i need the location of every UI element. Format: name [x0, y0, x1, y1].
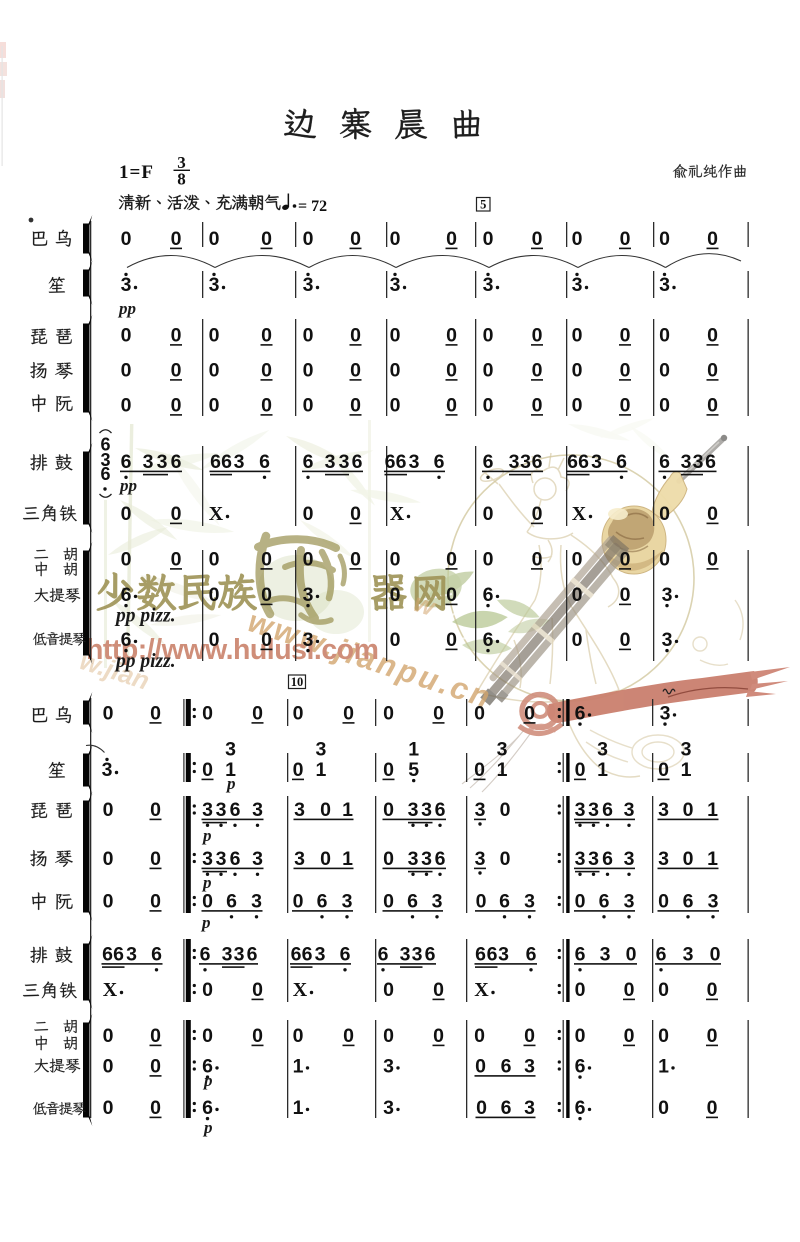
svg-text:10: 10: [291, 675, 304, 689]
svg-text:0: 0: [390, 395, 401, 417]
svg-text:1: 1: [293, 1056, 304, 1078]
svg-text:0: 0: [293, 759, 304, 781]
svg-text:0: 0: [303, 395, 314, 417]
svg-text:3: 3: [681, 451, 692, 473]
svg-text:0: 0: [261, 584, 272, 606]
svg-text:0: 0: [383, 703, 394, 725]
svg-text:0: 0: [446, 395, 457, 417]
svg-text:3: 3: [234, 451, 245, 473]
svg-text:0: 0: [121, 360, 132, 382]
svg-text:0: 0: [707, 1097, 718, 1119]
svg-text:0: 0: [209, 629, 220, 651]
svg-text:0: 0: [252, 1025, 263, 1047]
svg-text:0: 0: [620, 584, 631, 606]
svg-text:0: 0: [350, 549, 361, 571]
svg-text:3: 3: [294, 848, 305, 870]
svg-text:0: 0: [150, 799, 161, 821]
svg-text:6: 6: [396, 451, 407, 473]
svg-text:6: 6: [483, 629, 494, 651]
svg-text:0: 0: [707, 979, 718, 1001]
svg-text:0: 0: [383, 759, 394, 781]
svg-text:X: X: [293, 979, 308, 1001]
svg-text:3: 3: [315, 944, 326, 966]
svg-text:3: 3: [575, 799, 586, 821]
svg-text:0: 0: [350, 325, 361, 347]
svg-text:0: 0: [261, 325, 272, 347]
svg-text:3: 3: [624, 848, 635, 870]
svg-text:3: 3: [624, 891, 635, 913]
svg-text:0: 0: [202, 759, 213, 781]
svg-text:3: 3: [432, 891, 443, 913]
svg-text:6: 6: [100, 464, 110, 484]
svg-text:1: 1: [707, 848, 718, 870]
svg-text:3: 3: [251, 891, 262, 913]
svg-text:6: 6: [259, 451, 270, 473]
svg-text:8: 8: [177, 170, 186, 189]
svg-text:1: 1: [597, 759, 608, 781]
svg-text:X: X: [103, 979, 118, 1001]
svg-text:6: 6: [113, 944, 124, 966]
svg-text:0: 0: [707, 228, 718, 250]
svg-text:0: 0: [620, 228, 631, 250]
svg-text:3: 3: [252, 799, 263, 821]
svg-text:0: 0: [383, 891, 394, 913]
svg-text:0: 0: [500, 799, 511, 821]
svg-text:0: 0: [575, 891, 586, 913]
svg-text:6: 6: [483, 584, 494, 606]
svg-text:0: 0: [383, 799, 394, 821]
svg-text:= 72: = 72: [298, 198, 327, 215]
svg-text:6: 6: [102, 944, 113, 966]
svg-text:0: 0: [659, 360, 670, 382]
svg-text:p: p: [200, 913, 211, 932]
svg-text:6: 6: [302, 944, 313, 966]
svg-text:0: 0: [150, 891, 161, 913]
svg-text:3: 3: [572, 274, 583, 296]
svg-text:0: 0: [303, 503, 314, 525]
svg-text:p: p: [202, 1118, 213, 1137]
svg-text:0: 0: [532, 228, 543, 250]
svg-text:3: 3: [421, 799, 432, 821]
svg-text:3: 3: [693, 451, 704, 473]
svg-text:3: 3: [575, 848, 586, 870]
svg-text:3: 3: [708, 891, 719, 913]
svg-text:0: 0: [121, 395, 132, 417]
svg-text:0: 0: [121, 503, 132, 525]
svg-text:p: p: [202, 1071, 213, 1090]
svg-text:0: 0: [446, 629, 457, 651]
svg-text:3: 3: [524, 1097, 535, 1119]
svg-text:0: 0: [659, 503, 670, 525]
svg-text:X: X: [209, 503, 224, 525]
svg-text:3: 3: [659, 274, 670, 296]
svg-text:6: 6: [705, 451, 716, 473]
svg-text:0: 0: [474, 703, 485, 725]
svg-text:6: 6: [303, 451, 314, 473]
svg-text:0: 0: [103, 1056, 114, 1078]
svg-text:0: 0: [683, 848, 694, 870]
svg-text:0: 0: [707, 549, 718, 571]
svg-text:0: 0: [659, 325, 670, 347]
svg-text:0: 0: [446, 549, 457, 571]
svg-text:3: 3: [325, 451, 336, 473]
svg-text:0: 0: [572, 584, 583, 606]
svg-text:6: 6: [599, 891, 610, 913]
svg-text:0: 0: [483, 549, 494, 571]
svg-text:0: 0: [121, 228, 132, 250]
svg-text:6: 6: [683, 891, 694, 913]
svg-text:0: 0: [320, 799, 331, 821]
svg-text:0: 0: [103, 848, 114, 870]
svg-text:3: 3: [209, 274, 220, 296]
svg-text:0: 0: [209, 228, 220, 250]
svg-text:1=F: 1=F: [119, 162, 154, 183]
svg-text:0: 0: [475, 1056, 486, 1078]
svg-text:3: 3: [303, 629, 314, 651]
svg-text:6: 6: [202, 1097, 213, 1119]
svg-text:6: 6: [499, 891, 510, 913]
svg-text:6: 6: [230, 799, 241, 821]
svg-text:0: 0: [658, 1097, 669, 1119]
svg-text:0: 0: [500, 848, 511, 870]
svg-text:3: 3: [143, 451, 154, 473]
svg-text:X: X: [474, 979, 489, 1001]
svg-text:6: 6: [475, 944, 486, 966]
svg-text:0: 0: [209, 360, 220, 382]
svg-text:6: 6: [385, 451, 396, 473]
svg-text:3: 3: [202, 799, 213, 821]
svg-text:5: 5: [480, 198, 486, 212]
svg-text:6: 6: [121, 451, 132, 473]
svg-text:0: 0: [171, 395, 182, 417]
svg-text:0: 0: [390, 228, 401, 250]
svg-text:0: 0: [293, 1025, 304, 1047]
svg-text:0: 0: [202, 891, 213, 913]
svg-text:1: 1: [497, 759, 508, 781]
svg-text:0: 0: [150, 1056, 161, 1078]
svg-text:0: 0: [620, 629, 631, 651]
svg-text:0: 0: [659, 228, 670, 250]
svg-text:pp: pp: [117, 299, 136, 318]
svg-text:6: 6: [602, 848, 613, 870]
svg-text:0: 0: [575, 979, 586, 1001]
svg-text:3: 3: [202, 848, 213, 870]
svg-text:6: 6: [616, 451, 627, 473]
svg-text:0: 0: [150, 1097, 161, 1119]
svg-text:3: 3: [591, 451, 602, 473]
svg-text:6: 6: [291, 944, 302, 966]
svg-text:0: 0: [572, 395, 583, 417]
svg-text:3: 3: [121, 274, 132, 296]
svg-text:3: 3: [520, 451, 531, 473]
svg-text:1: 1: [315, 759, 326, 781]
svg-text:0: 0: [261, 395, 272, 417]
svg-text:0: 0: [572, 629, 583, 651]
svg-text:3: 3: [498, 944, 509, 966]
svg-text:1: 1: [681, 759, 692, 781]
svg-text:0: 0: [620, 360, 631, 382]
svg-text:0: 0: [446, 360, 457, 382]
svg-text:0: 0: [150, 848, 161, 870]
svg-text:3: 3: [662, 629, 673, 651]
svg-text:0: 0: [483, 395, 494, 417]
svg-text:0: 0: [209, 584, 220, 606]
svg-text:6: 6: [352, 451, 363, 473]
svg-text:6: 6: [171, 451, 182, 473]
svg-text:6: 6: [526, 944, 537, 966]
svg-text:0: 0: [261, 228, 272, 250]
svg-text:0: 0: [572, 228, 583, 250]
svg-text:0: 0: [103, 891, 114, 913]
svg-text:X: X: [572, 503, 587, 525]
svg-text:3: 3: [683, 944, 694, 966]
svg-text:0: 0: [103, 703, 114, 725]
svg-text:6: 6: [487, 944, 498, 966]
svg-text:3: 3: [383, 1097, 394, 1119]
svg-text:6: 6: [578, 451, 589, 473]
svg-text:1: 1: [342, 848, 353, 870]
svg-text:3: 3: [509, 451, 520, 473]
svg-text:6: 6: [567, 451, 578, 473]
svg-text:6: 6: [575, 1097, 586, 1119]
svg-text:0: 0: [390, 629, 401, 651]
svg-text:0: 0: [446, 325, 457, 347]
svg-text:0: 0: [383, 979, 394, 1001]
svg-text:p: p: [201, 826, 212, 845]
svg-text:3: 3: [222, 944, 233, 966]
svg-text:0: 0: [261, 629, 272, 651]
svg-text:0: 0: [350, 395, 361, 417]
svg-text:3: 3: [303, 274, 314, 296]
svg-text:0: 0: [446, 228, 457, 250]
svg-text:0: 0: [474, 1025, 485, 1047]
svg-text:0: 0: [209, 325, 220, 347]
svg-text:6: 6: [210, 451, 221, 473]
svg-text:0: 0: [532, 395, 543, 417]
svg-text:0: 0: [707, 360, 718, 382]
svg-text:0: 0: [103, 799, 114, 821]
svg-text:0: 0: [390, 325, 401, 347]
svg-text:6: 6: [226, 891, 237, 913]
svg-text:3: 3: [234, 944, 245, 966]
svg-text:0: 0: [476, 891, 487, 913]
svg-text:3: 3: [408, 848, 419, 870]
svg-text:3: 3: [624, 799, 635, 821]
svg-text:1: 1: [658, 1056, 669, 1078]
svg-text:0: 0: [524, 1025, 535, 1047]
svg-text:0: 0: [483, 325, 494, 347]
svg-text:0: 0: [121, 325, 132, 347]
svg-text:1: 1: [293, 1097, 304, 1119]
svg-text:0: 0: [532, 503, 543, 525]
svg-text:3: 3: [252, 848, 263, 870]
svg-text:0: 0: [121, 549, 132, 571]
svg-text:pp pizz.: pp pizz.: [114, 651, 176, 672]
svg-text:3: 3: [303, 584, 314, 606]
svg-text:6: 6: [425, 944, 436, 966]
svg-text:3: 3: [483, 274, 494, 296]
svg-text:0: 0: [103, 1097, 114, 1119]
svg-text:pp: pp: [118, 476, 137, 495]
svg-text:0: 0: [446, 584, 457, 606]
svg-text:0: 0: [620, 325, 631, 347]
svg-text:0: 0: [390, 549, 401, 571]
svg-text:6: 6: [340, 944, 351, 966]
svg-text:6: 6: [151, 944, 162, 966]
svg-text:0: 0: [624, 1025, 635, 1047]
svg-text:6: 6: [435, 799, 446, 821]
svg-text:6: 6: [121, 584, 132, 606]
svg-text:0: 0: [303, 325, 314, 347]
svg-text:3: 3: [475, 848, 486, 870]
svg-text:0: 0: [390, 584, 401, 606]
svg-text:6: 6: [575, 703, 586, 725]
svg-text:0: 0: [433, 1025, 444, 1047]
svg-text:0: 0: [532, 549, 543, 571]
svg-text:0: 0: [202, 979, 213, 1001]
svg-text:0: 0: [624, 979, 635, 1001]
svg-text:0: 0: [261, 360, 272, 382]
svg-text:0: 0: [532, 360, 543, 382]
svg-text:0: 0: [303, 360, 314, 382]
svg-text:p: p: [225, 774, 236, 793]
svg-text:3: 3: [342, 891, 353, 913]
svg-text:0: 0: [202, 1025, 213, 1047]
svg-text:6: 6: [378, 944, 389, 966]
svg-text:6: 6: [407, 891, 418, 913]
svg-text:0: 0: [483, 228, 494, 250]
svg-text:0: 0: [171, 325, 182, 347]
svg-text:3: 3: [600, 944, 611, 966]
svg-text:pp pizz.: pp pizz.: [114, 606, 176, 627]
svg-text:3: 3: [662, 584, 673, 606]
svg-text:3: 3: [409, 451, 420, 473]
svg-text:0: 0: [575, 759, 586, 781]
svg-text:1: 1: [408, 739, 419, 761]
svg-text:3: 3: [658, 848, 669, 870]
svg-text:6: 6: [483, 451, 494, 473]
svg-text:0: 0: [658, 1025, 669, 1047]
svg-text:0: 0: [350, 360, 361, 382]
svg-text:3: 3: [390, 274, 401, 296]
svg-text:0: 0: [303, 228, 314, 250]
svg-text:0: 0: [383, 848, 394, 870]
svg-text:0: 0: [252, 703, 263, 725]
svg-text:0: 0: [658, 759, 669, 781]
svg-text:3: 3: [225, 739, 236, 761]
svg-text:0: 0: [433, 703, 444, 725]
svg-text:0: 0: [343, 703, 354, 725]
svg-text:3: 3: [216, 799, 227, 821]
svg-text:0: 0: [433, 979, 444, 1001]
svg-text:0: 0: [350, 228, 361, 250]
svg-text:6: 6: [575, 944, 586, 966]
svg-text:3: 3: [597, 739, 608, 761]
svg-text:0: 0: [476, 1097, 487, 1119]
svg-text:0: 0: [707, 325, 718, 347]
svg-text:6: 6: [575, 1056, 586, 1078]
svg-text:3: 3: [497, 739, 508, 761]
svg-text:0: 0: [209, 549, 220, 571]
svg-text:6: 6: [317, 891, 328, 913]
svg-text:6: 6: [230, 848, 241, 870]
svg-text:0: 0: [575, 1025, 586, 1047]
svg-text:6: 6: [501, 1056, 512, 1078]
svg-text:3: 3: [412, 944, 423, 966]
svg-text:3: 3: [102, 759, 113, 781]
svg-text:0: 0: [483, 503, 494, 525]
svg-text:0: 0: [710, 944, 721, 966]
svg-text:1: 1: [342, 799, 353, 821]
svg-text:0: 0: [659, 395, 670, 417]
svg-text:0: 0: [620, 549, 631, 571]
svg-text:0: 0: [202, 703, 213, 725]
svg-text:3: 3: [400, 944, 411, 966]
svg-text:6: 6: [532, 451, 543, 473]
svg-text:6: 6: [659, 451, 670, 473]
svg-text:6: 6: [121, 629, 132, 651]
svg-text:3: 3: [157, 451, 168, 473]
svg-text:3: 3: [658, 799, 669, 821]
svg-text:3: 3: [588, 848, 599, 870]
svg-text:0: 0: [171, 228, 182, 250]
svg-text:3: 3: [524, 1056, 535, 1078]
svg-text:X: X: [390, 503, 405, 525]
svg-text:3: 3: [383, 1056, 394, 1078]
svg-text:0: 0: [532, 325, 543, 347]
svg-text:3: 3: [524, 891, 535, 913]
svg-text:0: 0: [103, 1025, 114, 1047]
svg-text:0: 0: [171, 549, 182, 571]
svg-text:0: 0: [683, 799, 694, 821]
svg-text:3: 3: [475, 799, 486, 821]
svg-text:0: 0: [293, 703, 304, 725]
svg-text:3: 3: [126, 944, 137, 966]
svg-text:6: 6: [200, 944, 211, 966]
svg-text:0: 0: [303, 549, 314, 571]
svg-text:0: 0: [626, 944, 637, 966]
svg-text:0: 0: [209, 395, 220, 417]
svg-text:0: 0: [659, 549, 670, 571]
svg-text:p: p: [201, 873, 212, 892]
svg-text:3: 3: [660, 703, 671, 725]
svg-text:0: 0: [390, 360, 401, 382]
svg-text:6: 6: [435, 848, 446, 870]
svg-text:0: 0: [171, 360, 182, 382]
svg-text:0: 0: [572, 549, 583, 571]
svg-text:1: 1: [707, 799, 718, 821]
svg-text:0: 0: [383, 1025, 394, 1047]
svg-text:0: 0: [350, 503, 361, 525]
svg-text:0: 0: [150, 1025, 161, 1047]
svg-text:0: 0: [171, 503, 182, 525]
svg-text:0: 0: [620, 395, 631, 417]
svg-text:0: 0: [658, 891, 669, 913]
svg-text:0: 0: [658, 979, 669, 1001]
svg-text:3: 3: [339, 451, 350, 473]
svg-text:6: 6: [247, 944, 258, 966]
svg-text:0: 0: [343, 1025, 354, 1047]
svg-text:0: 0: [150, 703, 161, 725]
svg-text:0: 0: [293, 891, 304, 913]
svg-text:6: 6: [656, 944, 667, 966]
svg-text:0: 0: [474, 759, 485, 781]
svg-text:0: 0: [524, 703, 535, 725]
svg-text:6: 6: [501, 1097, 512, 1119]
svg-text:6: 6: [602, 799, 613, 821]
svg-text:3: 3: [294, 799, 305, 821]
svg-text:6: 6: [221, 451, 232, 473]
